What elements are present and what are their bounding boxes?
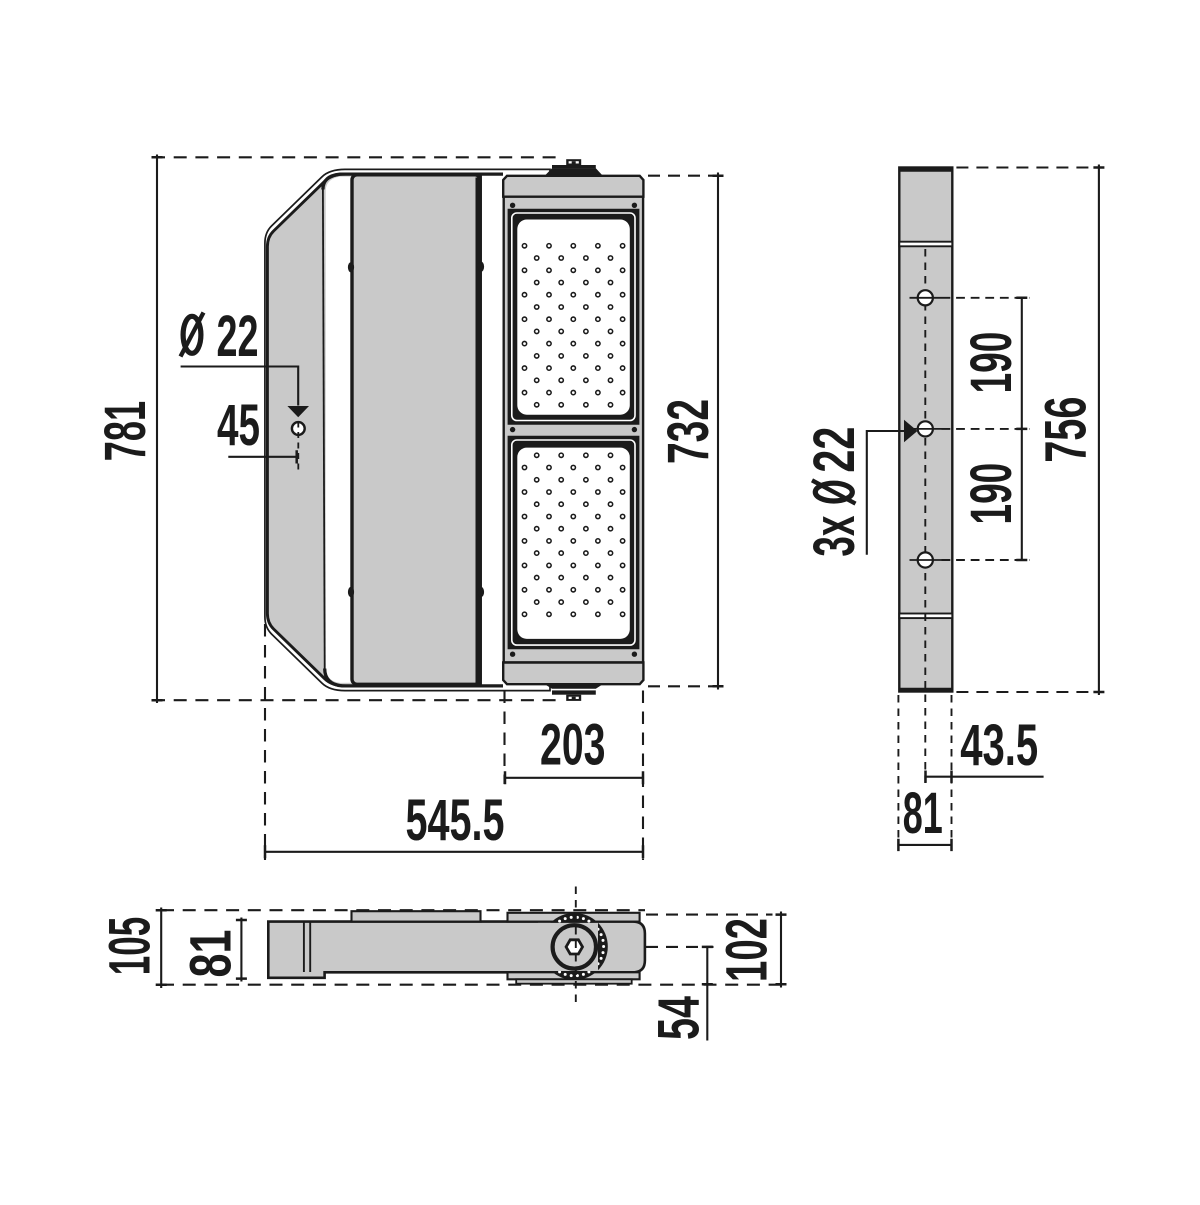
svg-text:22: 22 (802, 427, 867, 473)
svg-text:756: 756 (1034, 397, 1099, 463)
svg-text:54: 54 (647, 996, 712, 1040)
svg-text:81: 81 (903, 781, 943, 846)
svg-text:203: 203 (540, 713, 606, 778)
svg-text:45: 45 (217, 393, 260, 458)
svg-text:190: 190 (959, 332, 1024, 394)
svg-text:22: 22 (217, 304, 259, 369)
svg-text:102: 102 (715, 918, 780, 982)
svg-text:3x: 3x (802, 516, 867, 557)
svg-text:190: 190 (959, 463, 1024, 525)
svg-text:781: 781 (93, 401, 158, 461)
svg-text:545.5: 545.5 (406, 788, 505, 853)
svg-text:105: 105 (97, 917, 162, 976)
svg-text:43.5: 43.5 (960, 713, 1038, 778)
svg-text:732: 732 (656, 399, 721, 464)
svg-text:81: 81 (179, 930, 244, 978)
